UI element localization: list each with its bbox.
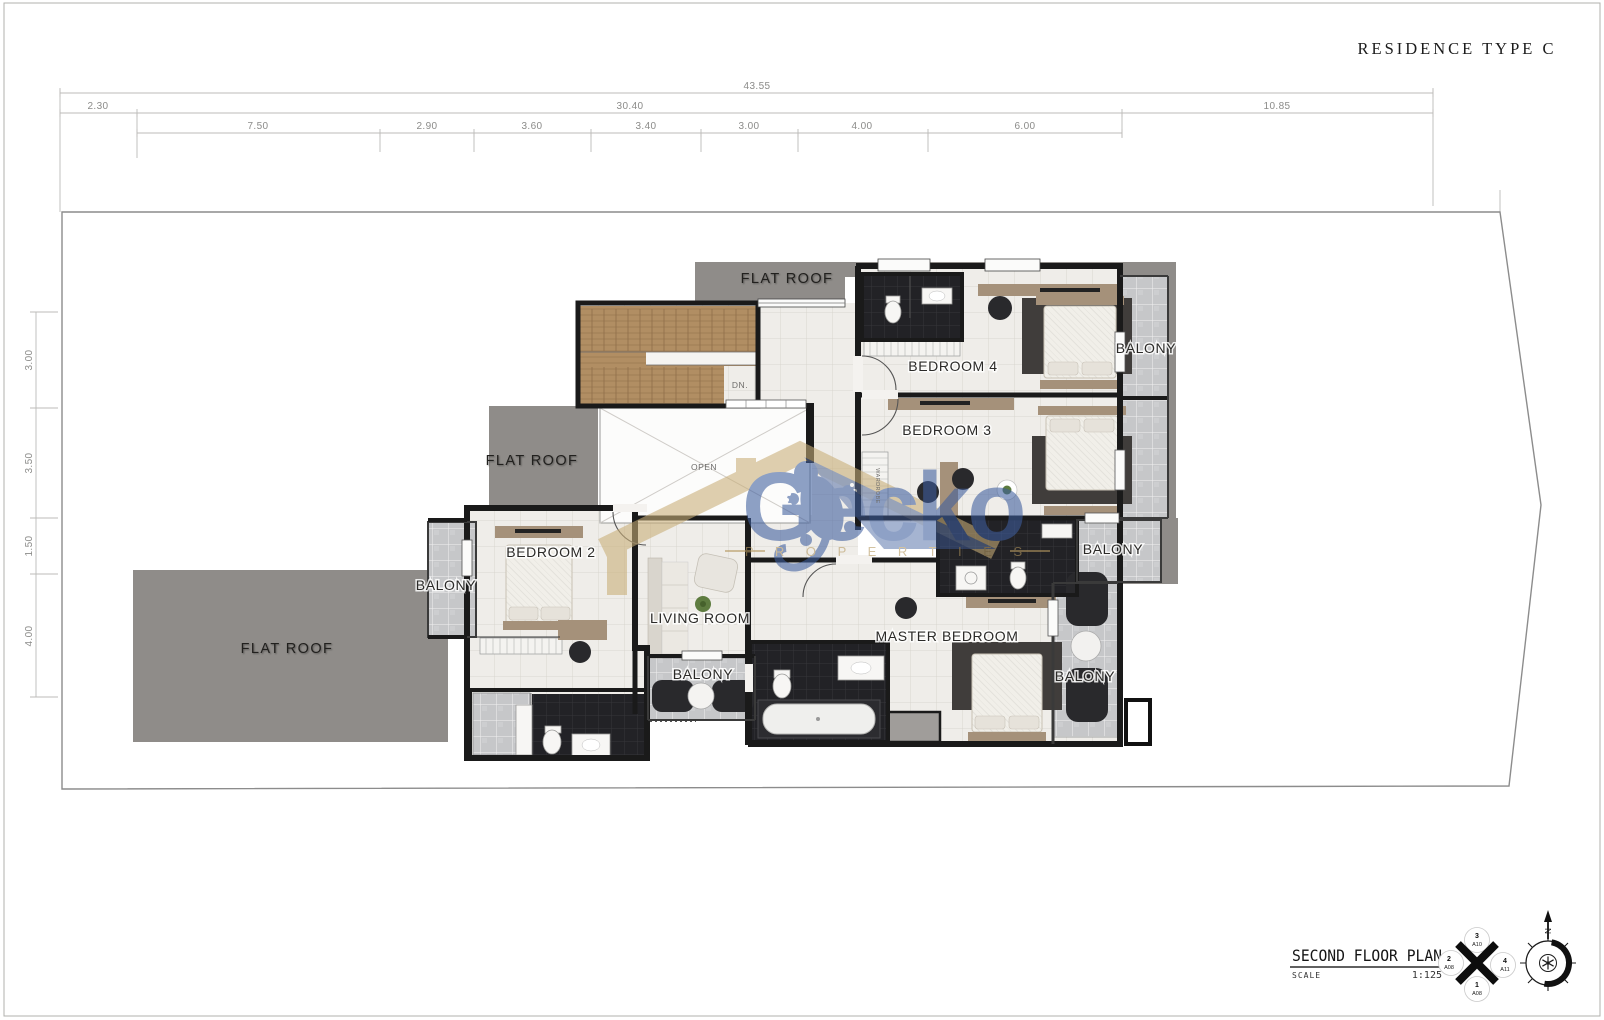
- door-gap: [745, 664, 753, 692]
- desk: [558, 620, 607, 640]
- label-master-bedroom: MASTER BEDROOM: [876, 628, 1019, 644]
- marker-top-ref: A10: [1472, 942, 1482, 948]
- stair-landing: [646, 352, 756, 365]
- dim-left-3-00: 3.00: [24, 349, 35, 370]
- dim-2-30: 2.30: [87, 101, 108, 112]
- marker-bottom-ref: A08: [1472, 991, 1482, 997]
- scale-label: SCALE: [1292, 971, 1321, 980]
- closet-box: [888, 712, 940, 742]
- bathroom-bedroom2: [473, 693, 644, 756]
- balcony-door: [1085, 513, 1119, 523]
- dim-6-00: 6.00: [1014, 121, 1035, 132]
- dim-3-60: 3.60: [521, 121, 542, 132]
- top-dimension-lines: 43.55 2.30 30.40 10.85 7.50 2.90 3.60 3.…: [60, 81, 1500, 213]
- dim-3-40: 3.40: [635, 121, 656, 132]
- chair: [569, 641, 591, 663]
- label-living-room: LIVING ROOM: [650, 610, 750, 626]
- floor-plan-sheet: RESIDENCE TYPE C 43.55 2.30 30.40 10.85 …: [0, 0, 1604, 1020]
- label-balcony-mid: BALONY: [1083, 541, 1143, 557]
- round-table: [1071, 631, 1101, 661]
- north-arrow: [1544, 910, 1552, 922]
- chair: [988, 296, 1012, 320]
- sheet-title: RESIDENCE TYPE C: [1358, 39, 1557, 58]
- dim-left-1-50: 1.50: [24, 535, 35, 556]
- marker-left-num: 2: [1447, 956, 1451, 963]
- balcony-door: [682, 651, 722, 660]
- label-bedroom4: BEDROOM 4: [908, 358, 997, 374]
- staircase: [580, 306, 757, 406]
- section-marker-icon: 3 A10 2 A08 4 A11 1 A08: [1439, 928, 1516, 1002]
- chair: [895, 597, 917, 619]
- wardrobe-bedroom2: [480, 638, 562, 654]
- title-block: SECOND FLOOR PLAN SCALE 1:125: [1290, 946, 1444, 981]
- label-bedroom2: BEDROOM 2: [506, 544, 595, 560]
- label-flat-roof-mid: FLAT ROOF: [486, 453, 579, 469]
- label-balcony-living: BALONY: [673, 666, 733, 682]
- label-down: DN.: [732, 380, 748, 390]
- marker-right-num: 4: [1503, 958, 1507, 965]
- label-flat-roof-big: FLAT ROOF: [241, 641, 334, 657]
- label-flat-roof-top: FLAT ROOF: [741, 271, 834, 287]
- label-balcony-master: BALONY: [1055, 668, 1115, 684]
- balcony-door: [1115, 450, 1125, 490]
- marker-right-ref: A11: [1500, 967, 1509, 973]
- dim-4-00: 4.00: [851, 121, 872, 132]
- door-gap: [613, 504, 647, 512]
- compass-north-letter: N: [1543, 928, 1552, 934]
- door-gap: [862, 390, 898, 399]
- round-table: [688, 683, 714, 709]
- label-balcony-bedroom2: BALONY: [416, 577, 476, 593]
- dim-left-4-00: 4.00: [24, 625, 35, 646]
- plan-canvas: RESIDENCE TYPE C 43.55 2.30 30.40 10.85 …: [0, 0, 1604, 1020]
- window: [878, 259, 930, 271]
- left-dimension-lines: 3.00 3.50 1.50 4.00: [24, 312, 58, 697]
- scale-value: 1:125: [1412, 970, 1442, 981]
- frame-box: [1126, 700, 1150, 744]
- compass-icon: N: [1520, 910, 1576, 991]
- label-wardrobe: WARDROBE: [874, 468, 880, 503]
- balcony-door: [462, 540, 472, 576]
- balcony-door: [1048, 600, 1058, 636]
- dim-3-00: 3.00: [738, 121, 759, 132]
- label-open: OPEN: [691, 462, 717, 472]
- bathroom-bedroom4: [864, 276, 960, 356]
- roof-mid-edge: [1160, 518, 1178, 584]
- dim-total: 43.55: [743, 81, 770, 92]
- marker-top-num: 3: [1475, 933, 1479, 940]
- dim-2-90: 2.90: [416, 121, 437, 132]
- dim-30-40: 30.40: [616, 101, 643, 112]
- dim-left-3-50: 3.50: [24, 452, 35, 473]
- window: [985, 259, 1040, 271]
- watermark-subtitle: P R O P E R T I E S: [745, 544, 1031, 559]
- plan-name: SECOND FLOOR PLAN: [1292, 946, 1442, 965]
- dim-7-50: 7.50: [247, 121, 268, 132]
- label-bedroom3: BEDROOM 3: [902, 422, 991, 438]
- label-balcony-bedroom4: BALONY: [1116, 340, 1176, 356]
- marker-bottom-num: 1: [1475, 982, 1479, 989]
- marker-left-ref: A08: [1444, 965, 1454, 971]
- dim-10-85: 10.85: [1263, 101, 1290, 112]
- door-gap: [853, 356, 863, 392]
